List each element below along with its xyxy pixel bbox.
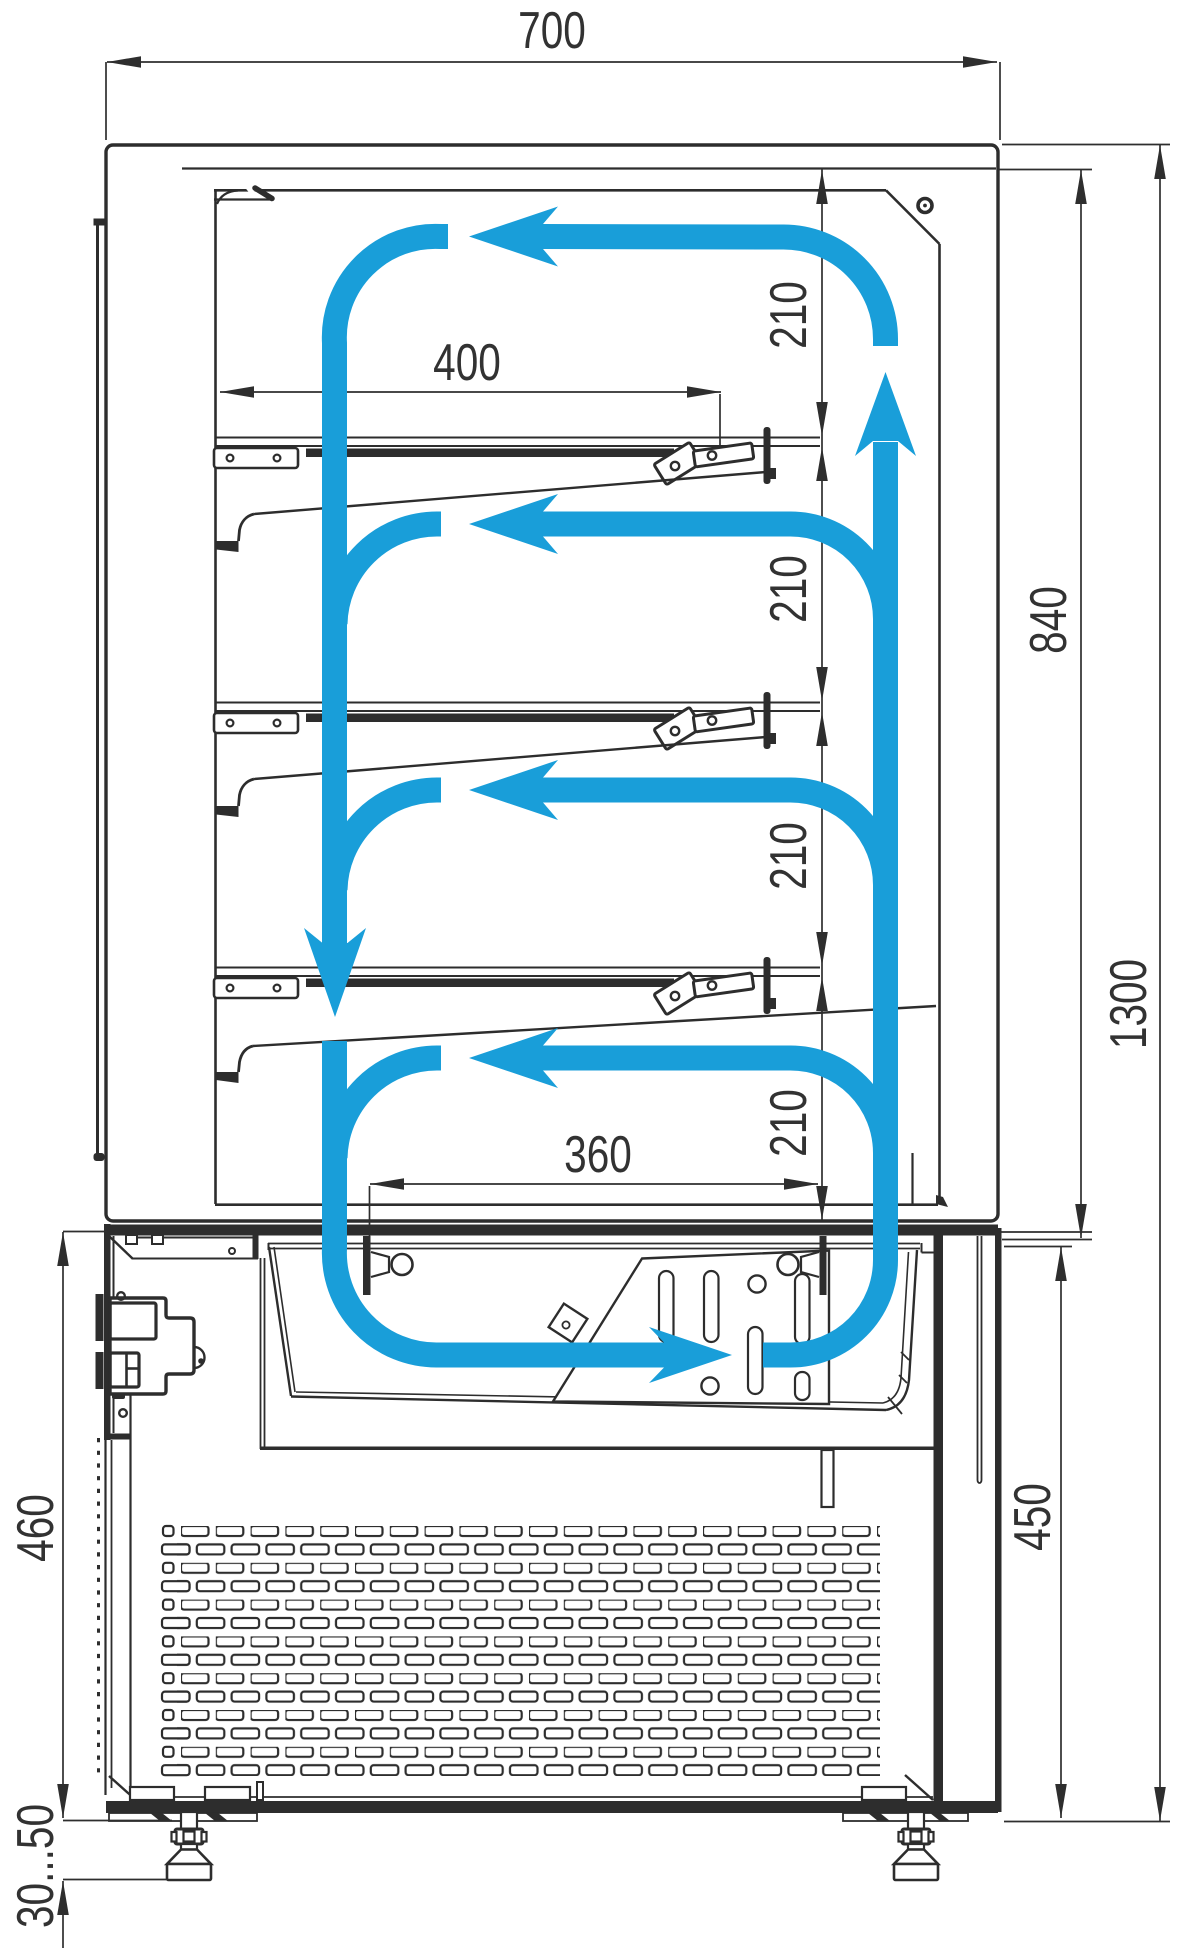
svg-text:700: 700 bbox=[518, 1, 586, 59]
svg-text:210: 210 bbox=[759, 281, 817, 349]
svg-text:210: 210 bbox=[759, 555, 817, 623]
svg-text:30...50: 30...50 bbox=[6, 1804, 64, 1928]
svg-text:210: 210 bbox=[759, 1089, 817, 1157]
svg-text:360: 360 bbox=[564, 1125, 632, 1183]
svg-text:1300: 1300 bbox=[1099, 959, 1157, 1049]
svg-text:460: 460 bbox=[6, 1494, 64, 1562]
svg-text:210: 210 bbox=[759, 822, 817, 890]
svg-text:400: 400 bbox=[433, 333, 501, 391]
svg-text:840: 840 bbox=[1019, 586, 1077, 654]
svg-text:450: 450 bbox=[1003, 1483, 1061, 1551]
